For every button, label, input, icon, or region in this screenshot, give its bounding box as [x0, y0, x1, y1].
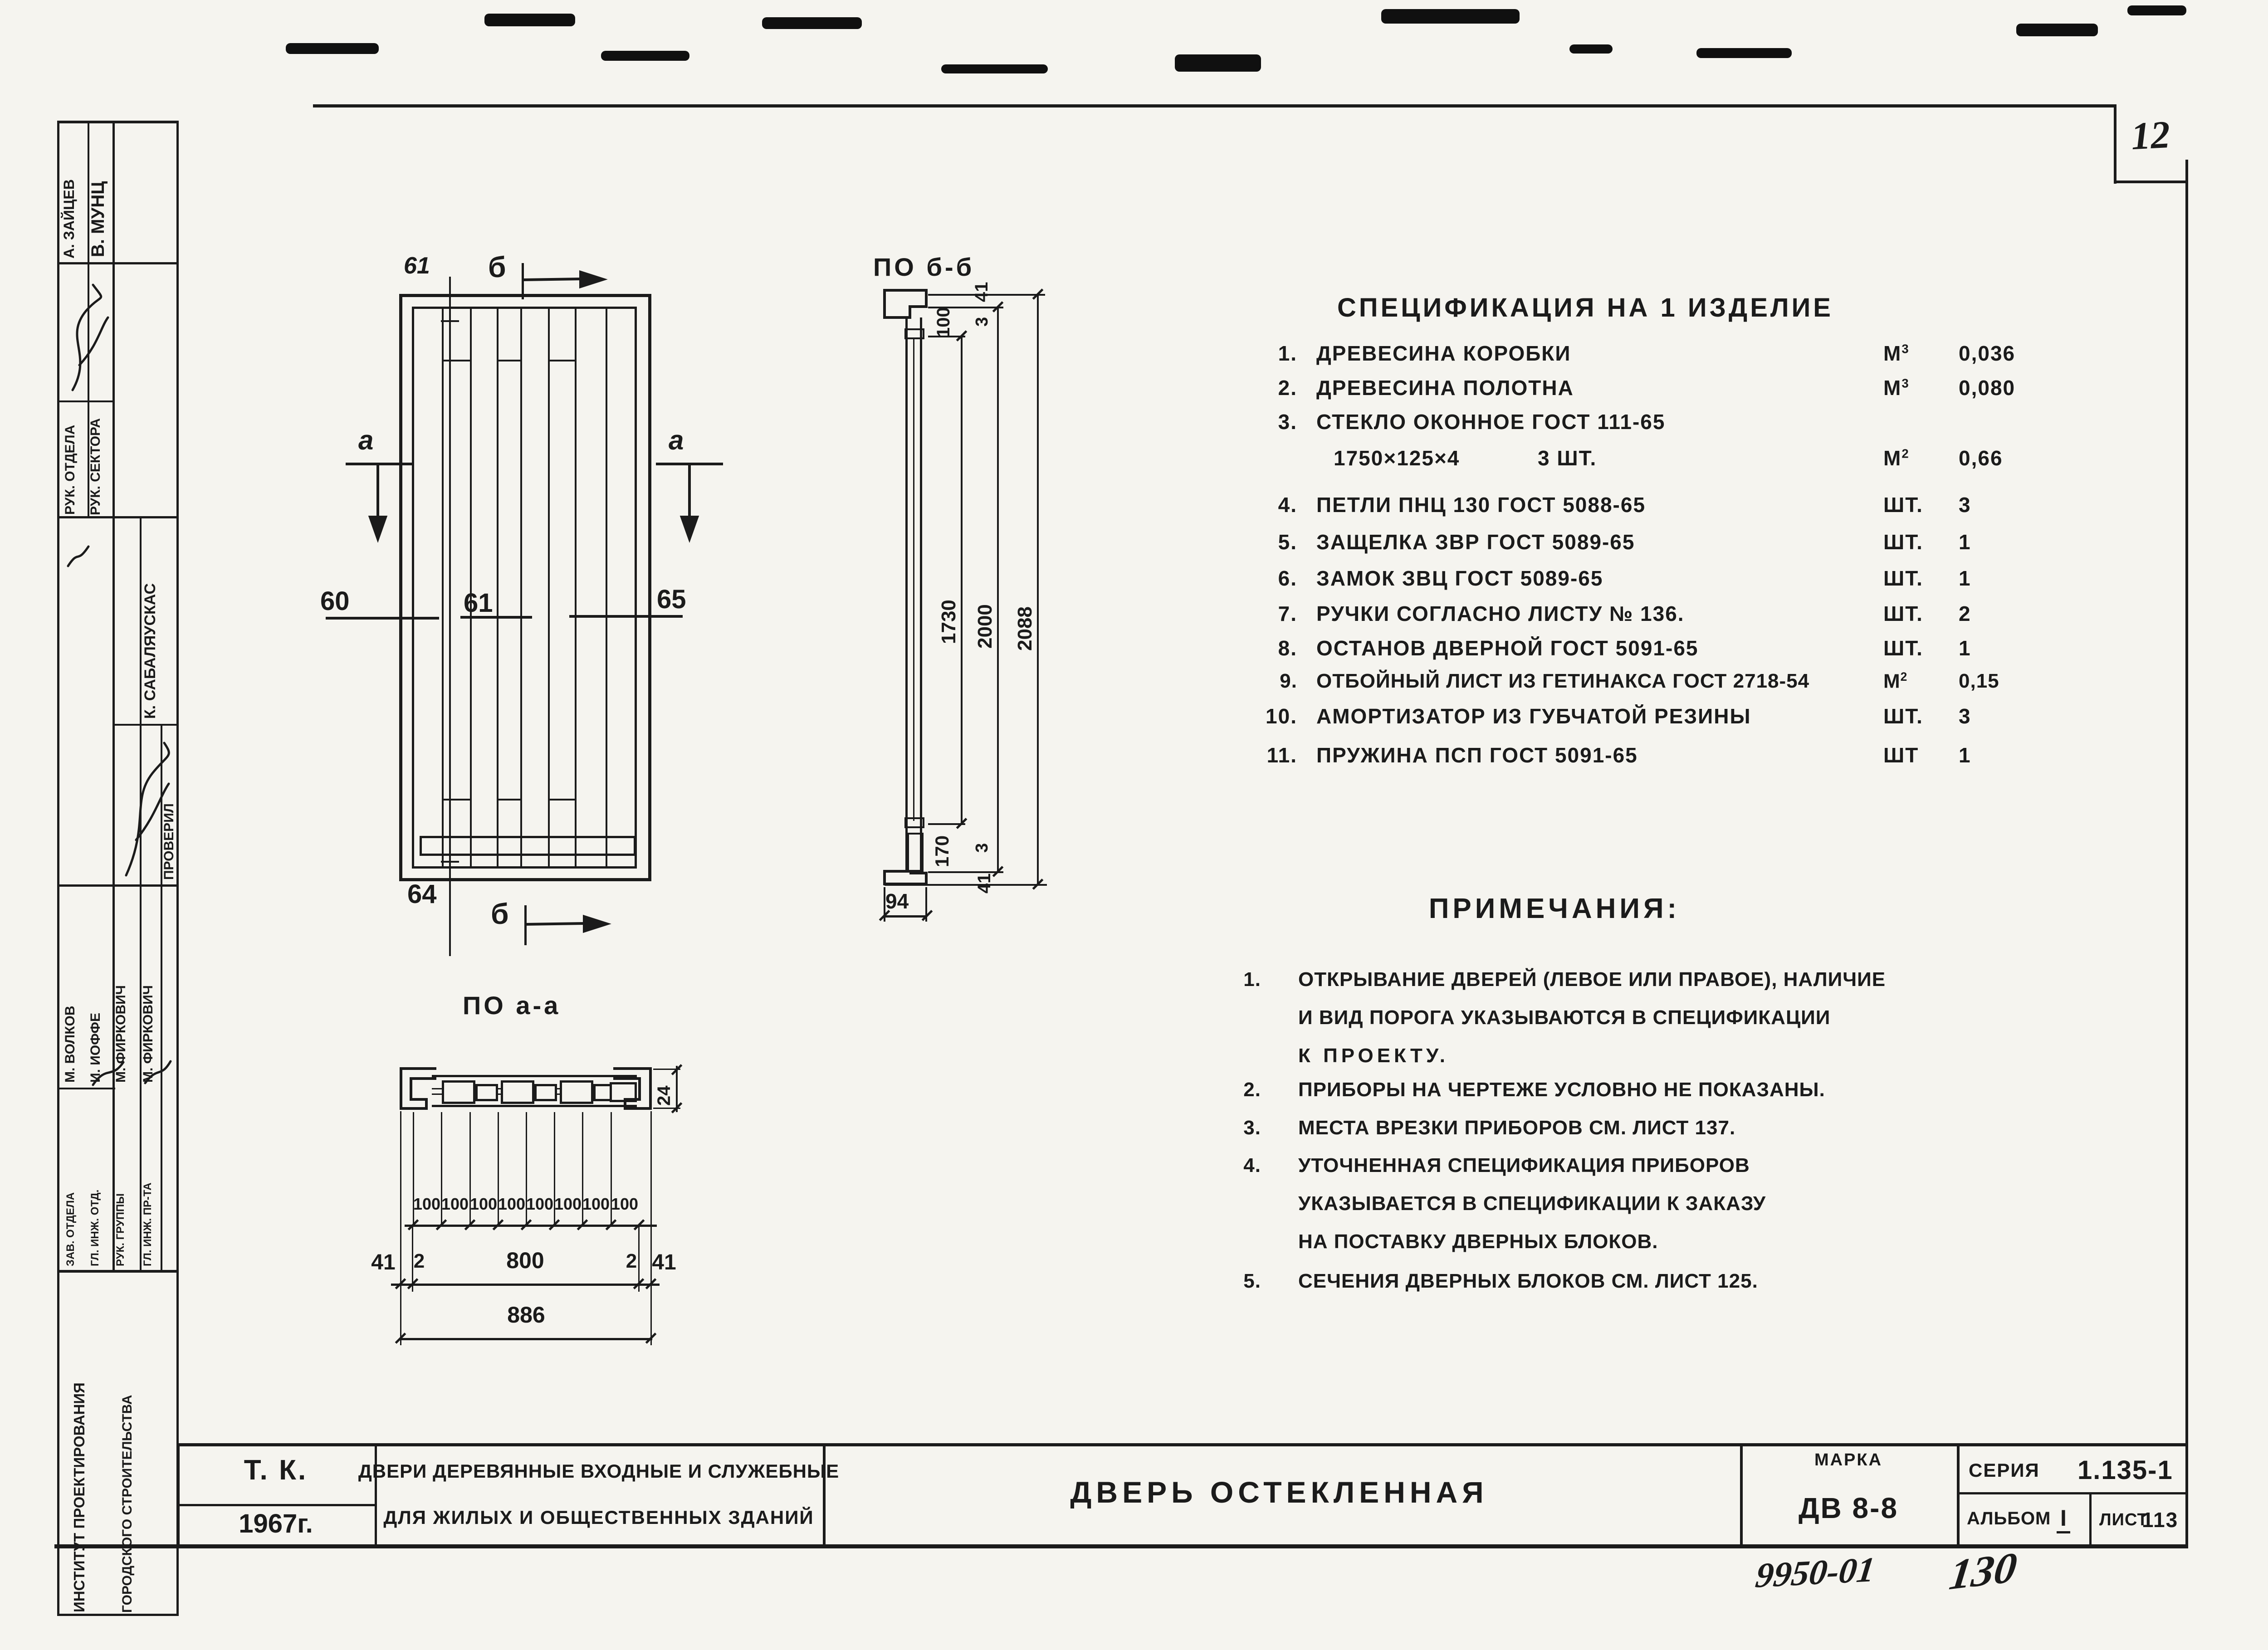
bb-frame-profiles [885, 290, 926, 884]
signatures [68, 285, 171, 1085]
section-arrows [370, 272, 697, 931]
aa-frame-profiles [401, 1069, 650, 1108]
vector-overlay [0, 0, 2268, 1650]
drawing-sheet: 12 А. ЗАЙЦЕВ В. МУНЦ РУК. ОТДЕЛА РУК. СЕ… [0, 0, 2268, 1650]
